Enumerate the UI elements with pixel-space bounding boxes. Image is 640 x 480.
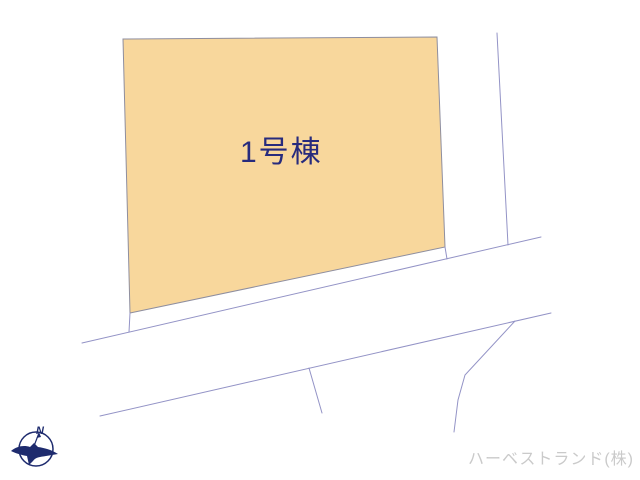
road-branch-line-middle [309, 368, 322, 413]
plot-1-label: 1号棟 [240, 136, 323, 169]
compass-north-label: N [36, 425, 45, 437]
compass: N [11, 425, 58, 466]
site-plan-canvas: 1号棟 N ハーベストランド(株) [0, 0, 640, 480]
road-bottom-edge-line [100, 313, 551, 416]
plot-left-edge-extension-line [129, 313, 130, 332]
plot-right-edge-extension-line [445, 247, 447, 259]
parcel-boundary-line-right [497, 33, 508, 245]
plot-1-polygon [123, 37, 445, 313]
company-credit: ハーベストランド(株) [468, 450, 634, 468]
road-branch-line-right [454, 321, 515, 432]
